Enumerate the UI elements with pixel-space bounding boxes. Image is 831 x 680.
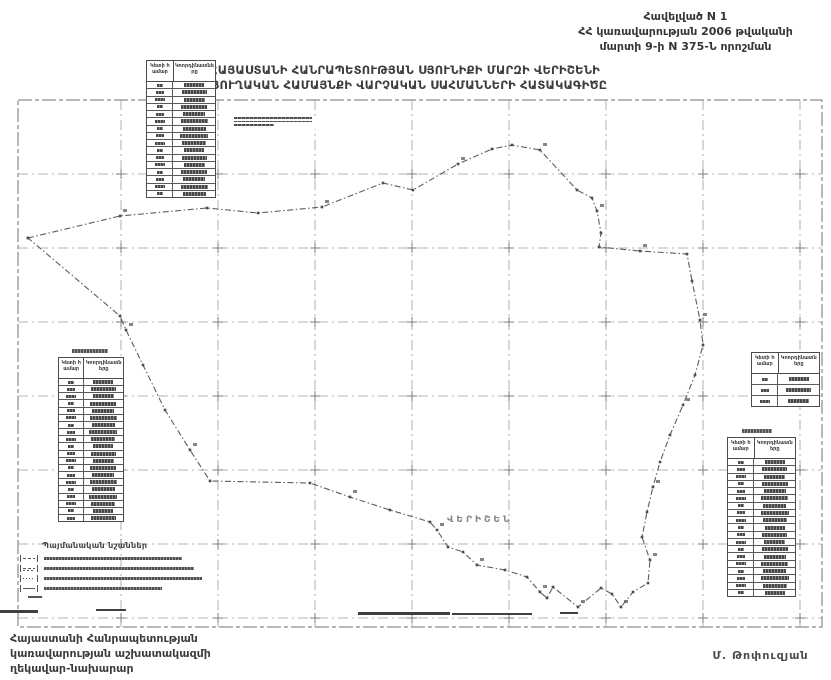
table-row xyxy=(59,429,123,436)
coordinate-cell xyxy=(754,555,795,559)
table-row xyxy=(59,501,123,508)
point-number-cell xyxy=(752,385,778,395)
legend-item xyxy=(20,573,235,583)
coordinate-cell xyxy=(173,156,215,160)
point-number-cell xyxy=(728,532,754,538)
table-header: Կետի համար Կոորդինատները xyxy=(752,353,819,374)
point-number-cell xyxy=(728,575,754,581)
map-note-smudge xyxy=(232,116,320,129)
point-number-cell xyxy=(59,501,84,507)
coordinate-cell xyxy=(84,394,123,398)
table-row xyxy=(147,155,215,162)
coordinate-cell xyxy=(754,584,795,588)
table-row xyxy=(147,82,215,89)
table-col-point: Կետի համար xyxy=(752,353,779,373)
table-row xyxy=(59,515,123,521)
point-number-cell xyxy=(147,184,173,190)
table-row xyxy=(728,575,795,582)
coordinate-cell xyxy=(754,489,795,493)
legend-trailing-dash xyxy=(28,596,42,598)
page-title: ՀԱՅԱՍՏԱՆԻ ՀԱՆՐԱՊԵՏՈՒԹՅԱՆ ՍՅՈՒՆԻՔԻ ՄԱՐԶԻ … xyxy=(150,63,660,93)
table-body xyxy=(752,374,819,406)
issuer-line-1: Հայաստանի Հանրապետության xyxy=(10,631,211,646)
point-number-icon xyxy=(20,575,38,582)
point-number-cell xyxy=(147,82,173,88)
coordinate-cell xyxy=(84,380,123,384)
coordinate-table-east-small: Կետի համար Կոորդինատները xyxy=(751,352,820,407)
legend-text-smudge xyxy=(44,587,162,590)
table-row xyxy=(147,118,215,125)
point-number-cell xyxy=(59,486,84,492)
table-row xyxy=(147,104,215,111)
table-row xyxy=(728,503,795,510)
coordinate-cell xyxy=(754,460,795,464)
table-col-coordinates: Կոորդինատները xyxy=(755,438,795,458)
coordinate-cell xyxy=(84,437,123,441)
coordinate-cell xyxy=(84,409,123,413)
table-header: Կետի համար Կոորդինատները xyxy=(728,438,795,459)
table-header: Կետի համար Կոորդինատները xyxy=(147,61,215,82)
table-row xyxy=(728,474,795,481)
point-number-cell xyxy=(59,515,84,521)
coordinate-cell xyxy=(778,377,819,381)
point-number-cell xyxy=(728,539,754,545)
table-col-point: Կետի համար xyxy=(147,61,174,81)
coordinate-cell xyxy=(173,134,215,138)
appendix-decision-line: մարտի 9-ի N 375-Ն որոշման xyxy=(540,39,831,54)
coordinate-cell xyxy=(84,402,123,406)
table-row xyxy=(59,508,123,515)
point-number-cell xyxy=(59,393,84,399)
note-text-smudge xyxy=(234,124,274,126)
coordinate-cell xyxy=(84,509,123,513)
point-number-cell xyxy=(59,400,84,406)
scanned-decree-map-page: Հավելված N 1 ՀՀ կառավարության 2006 թվակա… xyxy=(0,0,831,680)
appendix-government-line: ՀՀ կառավարության 2006 թվականի xyxy=(540,24,831,39)
legend: Պայմանական նշաններ xyxy=(20,541,235,598)
point-number-cell xyxy=(147,176,173,182)
issuer-block: Հայաստանի Հանրապետության կառավարության ա… xyxy=(10,631,211,676)
point-number-cell xyxy=(147,191,173,197)
point-number-cell xyxy=(147,126,173,132)
coordinate-cell xyxy=(84,416,123,420)
point-number-cell xyxy=(728,583,754,589)
coordinate-cell xyxy=(754,526,795,530)
coordinate-cell xyxy=(84,502,123,506)
point-number-cell xyxy=(59,494,84,500)
table-row xyxy=(728,553,795,560)
coordinate-cell xyxy=(84,473,123,477)
note-underline xyxy=(234,121,312,122)
point-number-cell xyxy=(728,568,754,574)
table-body xyxy=(728,459,795,596)
solid-line-icon xyxy=(20,585,38,592)
coordinate-table-east: Կետի համար Կոորդինատները xyxy=(727,437,796,597)
point-number-cell xyxy=(728,553,754,559)
legend-item xyxy=(20,563,235,573)
double-line-icon xyxy=(20,565,38,572)
point-number-cell xyxy=(147,111,173,117)
legend-text-smudge xyxy=(44,567,194,570)
table-row xyxy=(728,583,795,590)
point-number-cell xyxy=(59,415,84,421)
coordinate-cell xyxy=(754,547,795,551)
appendix-header: Հավելված N 1 ՀՀ կառավարության 2006 թվակա… xyxy=(540,9,831,54)
coordinate-cell xyxy=(754,482,795,486)
dash-dot-line-icon xyxy=(20,555,38,562)
table-row xyxy=(752,374,819,385)
coordinate-cell xyxy=(173,185,215,189)
point-number-cell xyxy=(59,465,84,471)
table-row xyxy=(728,510,795,517)
point-number-cell xyxy=(147,89,173,95)
coordinate-cell xyxy=(84,487,123,491)
issuer-line-3: ղեկավար-նախարար xyxy=(10,661,211,676)
coordinate-cell xyxy=(173,112,215,116)
table-row xyxy=(728,539,795,546)
point-number-cell xyxy=(59,408,84,414)
legend-items xyxy=(20,553,235,593)
point-number-cell xyxy=(147,118,173,124)
coordinate-cell xyxy=(778,388,819,392)
legend-text-smudge xyxy=(44,577,202,580)
table-row xyxy=(147,176,215,183)
point-number-cell xyxy=(147,155,173,161)
table-row xyxy=(728,459,795,466)
table-row xyxy=(147,191,215,197)
title-line-1: ՀԱՅԱՍՏԱՆԻ ՀԱՆՐԱՊԵՏՈՒԹՅԱՆ ՍՅՈՒՆԻՔԻ ՄԱՐԶԻ … xyxy=(150,63,660,78)
coordinate-cell xyxy=(173,127,215,131)
coordinate-cell xyxy=(754,496,795,500)
coordinate-cell xyxy=(754,591,795,595)
point-number-cell xyxy=(147,104,173,110)
table-row xyxy=(59,443,123,450)
table-row xyxy=(59,458,123,465)
coordinate-cell xyxy=(754,518,795,522)
table-row xyxy=(59,465,123,472)
point-number-cell xyxy=(728,546,754,552)
table-row xyxy=(147,184,215,191)
table-row xyxy=(147,89,215,96)
table-row xyxy=(147,140,215,147)
table-row xyxy=(728,517,795,524)
point-number-cell xyxy=(59,472,84,478)
point-number-cell xyxy=(147,147,173,153)
point-number-cell xyxy=(728,524,754,530)
table-row xyxy=(752,385,819,396)
coordinate-cell xyxy=(173,98,215,102)
table-row xyxy=(59,479,123,486)
coordinate-cell xyxy=(754,511,795,515)
coordinate-cell xyxy=(84,480,123,484)
point-number-cell xyxy=(59,458,84,464)
coordinate-cell xyxy=(84,459,123,463)
coordinate-table-west: Կետի համար Կոորդինատները xyxy=(58,357,124,522)
table-row xyxy=(59,408,123,415)
table-row xyxy=(59,415,123,422)
table-row xyxy=(728,495,795,502)
point-number-cell xyxy=(59,422,84,428)
coordinate-cell xyxy=(754,467,795,471)
table-row xyxy=(59,393,123,400)
coordinate-cell xyxy=(173,90,215,94)
table-caption-smudge xyxy=(72,349,108,353)
coordinate-cell xyxy=(754,576,795,580)
coordinate-cell xyxy=(84,423,123,427)
point-number-cell xyxy=(59,386,84,392)
coordinate-cell xyxy=(173,119,215,123)
table-row xyxy=(728,532,795,539)
legend-item xyxy=(20,583,235,593)
table-row xyxy=(147,147,215,154)
table-header: Կետի համար Կոորդինատները xyxy=(59,358,123,379)
coordinate-cell xyxy=(84,387,123,391)
coordinate-cell xyxy=(754,562,795,566)
coordinate-cell xyxy=(173,105,215,109)
coordinate-cell xyxy=(173,141,215,145)
point-number-cell xyxy=(59,379,84,385)
coordinate-cell xyxy=(84,495,123,499)
table-body xyxy=(147,82,215,197)
table-col-point: Կետի համար xyxy=(728,438,755,458)
coordinate-cell xyxy=(173,83,215,87)
table-row xyxy=(147,97,215,104)
point-number-cell xyxy=(728,561,754,567)
issuer-line-2: կառավարության աշխատակազմի xyxy=(10,646,211,661)
point-number-cell xyxy=(752,396,778,406)
table-row xyxy=(147,126,215,133)
coordinate-cell xyxy=(754,475,795,479)
point-number-cell xyxy=(59,443,84,449)
coordinate-cell xyxy=(754,533,795,537)
point-number-cell xyxy=(728,488,754,494)
point-number-cell xyxy=(752,374,778,384)
table-row xyxy=(147,133,215,140)
coordinate-cell xyxy=(754,504,795,508)
point-number-cell xyxy=(728,466,754,472)
table-row xyxy=(728,546,795,553)
table-body xyxy=(59,379,123,521)
point-number-cell xyxy=(147,169,173,175)
coordinate-cell xyxy=(84,452,123,456)
point-number-cell xyxy=(728,495,754,501)
legend-text-smudge xyxy=(44,557,182,560)
coordinate-cell xyxy=(778,399,819,403)
point-number-cell xyxy=(147,97,173,103)
table-row xyxy=(59,400,123,407)
point-number-cell xyxy=(147,162,173,168)
coordinate-cell xyxy=(173,148,215,152)
coordinate-cell xyxy=(173,170,215,174)
point-number-cell xyxy=(59,436,84,442)
coordinate-cell xyxy=(754,540,795,544)
table-col-coordinates: Կոորդինատները xyxy=(84,358,123,378)
point-number-cell xyxy=(728,481,754,487)
coordinate-cell xyxy=(173,177,215,181)
point-number-cell xyxy=(59,479,84,485)
table-caption-smudge xyxy=(742,429,772,433)
legend-item xyxy=(20,553,235,563)
table-row xyxy=(728,568,795,575)
point-number-cell xyxy=(147,133,173,139)
point-number-cell xyxy=(728,503,754,509)
coordinate-cell xyxy=(173,192,215,196)
coordinate-cell xyxy=(754,569,795,573)
point-number-cell xyxy=(59,429,84,435)
table-row xyxy=(59,386,123,393)
point-number-cell xyxy=(728,517,754,523)
table-row xyxy=(728,524,795,531)
table-row xyxy=(728,466,795,473)
table-row xyxy=(728,590,795,596)
table-row xyxy=(147,162,215,169)
coordinate-cell xyxy=(84,516,123,520)
title-line-2: ԳՅՈՒՂԱԿԱՆ ՀԱՄԱՅՆՔԻ ՎԱՐՉԱԿԱՆ ՍԱՀՄԱՆՆԵՐԻ Հ… xyxy=(150,78,660,93)
table-col-coordinates: Կոորդինատները xyxy=(779,353,819,373)
signature-name: Մ. Թոփուզյան xyxy=(698,649,823,662)
table-row xyxy=(59,379,123,386)
table-row xyxy=(59,494,123,501)
table-row xyxy=(752,396,819,406)
table-row xyxy=(59,472,123,479)
table-col-coordinates: Կոորդինատները xyxy=(174,61,215,81)
table-row xyxy=(59,436,123,443)
table-row xyxy=(147,169,215,176)
point-number-cell xyxy=(728,459,754,465)
point-number-cell xyxy=(59,451,84,457)
table-row xyxy=(59,422,123,429)
coordinate-cell xyxy=(173,163,215,167)
point-number-cell xyxy=(59,508,84,514)
table-row xyxy=(147,111,215,118)
coordinate-cell xyxy=(84,466,123,470)
point-number-cell xyxy=(728,474,754,480)
table-row xyxy=(728,561,795,568)
table-row xyxy=(728,488,795,495)
table-row xyxy=(728,481,795,488)
point-number-cell xyxy=(728,590,754,596)
point-number-cell xyxy=(728,510,754,516)
table-col-point: Կետի համար xyxy=(59,358,84,378)
coordinate-cell xyxy=(84,444,123,448)
table-row xyxy=(59,486,123,493)
point-number-cell xyxy=(147,140,173,146)
note-text-smudge xyxy=(234,117,312,119)
table-row xyxy=(59,451,123,458)
coordinate-cell xyxy=(84,430,123,434)
legend-title: Պայմանական նշաններ xyxy=(42,541,235,550)
appendix-number: Հավելված N 1 xyxy=(540,9,831,24)
settlement-name-label: ՎԵՐԻՇԵՆ xyxy=(447,515,512,525)
coordinate-table-northwest: Կետի համար Կոորդինատները xyxy=(146,60,216,198)
